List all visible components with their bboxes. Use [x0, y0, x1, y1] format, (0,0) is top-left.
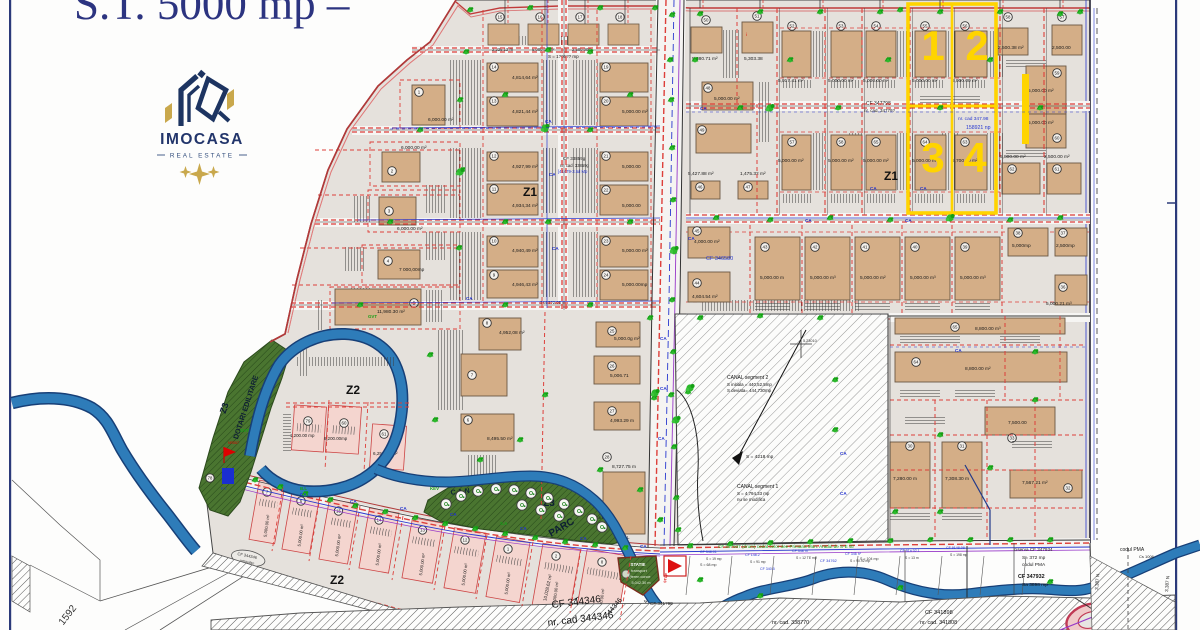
svg-text:25: 25 [610, 329, 615, 334]
svg-text:60: 60 [1055, 136, 1060, 141]
svg-text:5,303.38: 5,303.38 [744, 56, 763, 62]
svg-text:43: 43 [763, 245, 768, 250]
svg-text:CA: CA [660, 336, 667, 341]
svg-text:CANAL segment 1: CANAL segment 1 [737, 484, 778, 490]
svg-text:48: 48 [706, 86, 711, 91]
svg-text:CA: CA [700, 106, 707, 111]
svg-text:CA: CA [350, 499, 357, 504]
svg-text:NR557: NR557 [228, 441, 239, 445]
svg-text:5,000.00 m²: 5,000.00 m² [828, 78, 854, 84]
svg-text:CA: CA [450, 512, 457, 517]
svg-text:4,934,34 m²: 4,934,34 m² [512, 203, 538, 209]
svg-text:37: 37 [1061, 231, 1066, 236]
svg-text:codul PMA: codul PMA [1120, 547, 1145, 553]
svg-text:4,946,43 m²: 4,946,43 m² [512, 282, 538, 288]
svg-text:Cs 1006: Cs 1006 [1139, 554, 1155, 559]
svg-text:CF 148.2: CF 148.2 [745, 553, 760, 557]
svg-text:CF 341?98: CF 341?98 [650, 601, 673, 606]
svg-text:2: 2 [965, 22, 988, 69]
svg-text:ciserva CF 347934: ciserva CF 347934 [1014, 547, 1053, 552]
svg-text:5,000.00 m²: 5,000.00 m² [863, 158, 889, 164]
svg-text:4,940,49 m²: 4,940,49 m² [512, 248, 538, 254]
svg-text:1,475.32 m²: 1,475.32 m² [740, 171, 766, 177]
svg-text:79: 79 [306, 419, 311, 424]
svg-text:Z2: Z2 [330, 573, 344, 587]
svg-text:5,000.00: 5,000.00 [622, 203, 641, 209]
svg-text:61: 61 [382, 432, 387, 437]
svg-text:7,500.00: 7,500.00 [1008, 420, 1027, 426]
svg-text:5,000.00 m²: 5,000.00 m² [863, 78, 889, 84]
svg-text:19: 19 [604, 65, 609, 70]
svg-text:5,800.00 m²: 5,800.00 m² [1000, 154, 1026, 160]
svg-text:CF 347937 (drum) cedat celor d: CF 347937 (drum) cedat celor dee Primari… [718, 544, 855, 549]
svg-text:5,000.00 m³: 5,000.00 m³ [810, 275, 836, 281]
svg-text:33: 33 [1010, 436, 1015, 441]
svg-text:5,000.00 m²: 5,000.00 m² [952, 78, 978, 84]
svg-text:41: 41 [863, 245, 868, 250]
svg-text:12: 12 [492, 154, 497, 159]
svg-text:Z1: Z1 [884, 169, 898, 183]
svg-text:CANAL segment 2: CANAL segment 2 [727, 375, 768, 381]
svg-text:45: 45 [695, 229, 700, 234]
svg-text:65: 65 [874, 140, 879, 145]
svg-text:Sa 3898 mp: Sa 3898 mp [1022, 582, 1048, 588]
svg-text:5,23010: 5,23010 [803, 339, 817, 343]
svg-text:6,000.00 m²: 6,000.00 m² [397, 226, 423, 232]
svg-text:5,427.88 m²: 5,427.88 m² [688, 171, 714, 177]
svg-text:5,017.41 m²: 5,017.41 m² [778, 78, 804, 84]
svg-text:5,000.00: 5,000.00 [622, 164, 641, 170]
svg-text:4,927,99 m²: 4,927,99 m² [512, 164, 538, 170]
svg-text:28: 28 [605, 455, 610, 460]
svg-text:10: 10 [492, 239, 497, 244]
svg-text:5,000.00 m²: 5,000.00 m² [1028, 120, 1054, 126]
svg-text:P.T.: P.T. [221, 487, 227, 491]
svg-text:CF 34762: CF 34762 [820, 559, 837, 563]
svg-text:nr. cad. 338770: nr. cad. 338770 [772, 620, 809, 626]
svg-text:4,000.00 m²: 4,000.00 m² [694, 239, 720, 245]
svg-text:nr. cad. 341808: nr. cad. 341808 [920, 620, 957, 626]
svg-text:nu se modifica: nu se modifica [737, 497, 766, 502]
svg-text:CF 348 m: CF 348 m [792, 549, 808, 553]
svg-text:6,000.00 m²: 6,000.00 m² [428, 117, 454, 123]
svg-text:5,000.00 m²: 5,000.00 m² [828, 158, 854, 164]
svg-text:KEV: KEV [430, 486, 439, 491]
svg-text:46: 46 [698, 185, 703, 190]
svg-text:CA: CA [658, 436, 665, 441]
svg-text:5,000.00 m²: 5,000.00 m² [778, 158, 804, 164]
svg-text:58: 58 [1006, 15, 1011, 20]
svg-text:2,500.00: 2,500.00 [1052, 45, 1071, 51]
svg-text:S = 104 mp: S = 104 mp [860, 557, 878, 561]
svg-text:CA: CA [545, 119, 552, 124]
svg-text:31: 31 [960, 444, 965, 449]
svg-text:60: 60 [342, 421, 347, 426]
svg-text:Z1: Z1 [523, 185, 537, 199]
svg-text:S = 91 mp: S = 91 mp [750, 560, 766, 564]
svg-text:4,814,64 m²: 4,814,64 m² [512, 75, 538, 81]
svg-text:2,500mp: 2,500mp [1056, 243, 1075, 249]
svg-text:S = 198 mp: S = 198 mp [950, 553, 968, 557]
svg-text:5,000.00 m²: 5,000.00 m² [622, 109, 648, 115]
svg-text:CF 346580: CF 346580 [706, 256, 733, 262]
svg-text:7 000,00mp: 7 000,00mp [399, 267, 425, 273]
svg-text:36: 36 [1061, 285, 1066, 290]
svg-text:1: 1 [921, 22, 944, 69]
svg-text:4,993.29 m: 4,993.29 m [610, 418, 634, 424]
svg-text:CA: CA [466, 296, 473, 301]
svg-text:5,000mp: 5,000mp [1012, 243, 1031, 249]
svg-text:5,000.00 m²: 5,000.00 m² [1028, 88, 1054, 94]
svg-text:CA: CA [870, 186, 877, 191]
svg-text:S deviata= 444,730mp: S deviata= 444,730mp [727, 388, 772, 393]
svg-text:5,000.00 m³: 5,000.00 m³ [960, 275, 986, 281]
svg-text:65: 65 [953, 325, 958, 330]
svg-text:11: 11 [492, 187, 497, 192]
svg-text:8,727.75 m: 8,727.75 m [612, 464, 636, 470]
svg-text:CA: CA [549, 172, 556, 177]
svg-text:S = 1?05?? mp: S = 1?05?? mp [548, 54, 579, 59]
svg-text:Z2: Z2 [346, 383, 360, 397]
svg-text:CF 91a 02.1: CF 91a 02.1 [900, 549, 920, 553]
svg-text:13: 13 [492, 99, 497, 104]
svg-text:1,200.00 mp: 1,200.00 mp [290, 433, 315, 438]
svg-text:5,000.00 m³: 5,000.00 m³ [910, 275, 936, 281]
svg-text:S = 4218 mp: S = 4218 mp [746, 454, 774, 460]
svg-text:58: 58 [839, 140, 844, 145]
svg-text:GVT: GVT [240, 428, 249, 433]
svg-text:158921 np: 158921 np [966, 125, 991, 131]
svg-text:40: 40 [913, 245, 918, 250]
svg-text:5,042.30 m: 5,042.30 m [632, 581, 651, 585]
svg-text:CA: CA [660, 386, 667, 391]
svg-text:12: 12 [463, 538, 468, 543]
svg-text:S initiala = 440,52.5mp: S initiala = 440,52.5mp [727, 382, 772, 387]
svg-text:30: 30 [908, 444, 913, 449]
svg-text:15: 15 [498, 15, 503, 20]
svg-text:5,000.00mp: 5,000.00mp [622, 282, 648, 288]
svg-text:IMOCASA: IMOCASA [160, 131, 244, 148]
svg-text:24: 24 [604, 273, 609, 278]
svg-text:CF 347932: CF 347932 [1018, 574, 1045, 580]
svg-text:GVT: GVT [368, 314, 377, 319]
svg-text:S.A: S.A [500, 521, 508, 526]
svg-text:5,000.00 m²: 5,000.00 m² [622, 248, 648, 254]
svg-text:5,000.00 m: 5,000.00 m [760, 275, 784, 281]
svg-text:8,200.00mp: 8,200.00mp [324, 436, 348, 441]
svg-text:3: 3 [921, 134, 944, 181]
svg-text:CF 9148.08: CF 9148.08 [946, 546, 965, 550]
svg-text:5,006.71: 5,006.71 [610, 373, 629, 379]
svg-text:CA: CA [840, 451, 847, 456]
svg-text:nr. cad. 33859g: nr. cad. 33859g [560, 163, 590, 168]
svg-text:CA: CA [640, 544, 647, 549]
svg-text:23: 23 [604, 239, 609, 244]
svg-text:CF 346 h²: CF 346 h² [845, 552, 862, 556]
svg-text:i: i [746, 32, 747, 37]
svg-text:S = 13 m: S = 13 m [905, 556, 919, 560]
svg-text:CA: CA [300, 492, 307, 497]
svg-text:codul PMA: codul PMA [1022, 562, 1046, 568]
svg-text:50: 50 [704, 18, 709, 23]
svg-text:51: 51 [755, 14, 760, 19]
svg-text:CA: CA [920, 186, 927, 191]
svg-text:CA: CA [552, 246, 559, 251]
svg-text:20: 20 [604, 99, 609, 104]
svg-text:CF 340.5: CF 340.5 [760, 567, 775, 571]
svg-text:CA: CA [805, 218, 812, 223]
svg-text:49: 49 [700, 128, 705, 133]
svg-text:4,952,08 m²: 4,952,08 m² [499, 330, 525, 336]
svg-text:17: 17 [578, 15, 583, 20]
svg-text:22: 22 [604, 188, 609, 193]
svg-text:CA: CA [520, 526, 527, 531]
svg-text:5,000.00 m²: 5,000.00 m² [714, 96, 740, 102]
svg-text:5,000.21 m³: 5,000.21 m³ [1046, 301, 1072, 307]
svg-text:CA: CA [688, 236, 695, 241]
svg-text:59: 59 [1055, 71, 1060, 76]
svg-text:S = 19 mp: S = 19 mp [706, 557, 722, 561]
svg-text:CA: CA [580, 536, 587, 541]
svg-text:18: 18 [618, 15, 623, 20]
svg-text:CA: CA [840, 491, 847, 496]
svg-text:CA: CA [905, 218, 912, 223]
svg-text:S.T. 5000 mp –: S.T. 5000 mp – [74, 0, 350, 29]
svg-text:nr. cad 347.98: nr. cad 347.98 [958, 116, 989, 122]
svg-text:39: 39 [963, 245, 968, 250]
svg-text:2,500.38 m²: 2,500.38 m² [998, 45, 1024, 51]
svg-text:(teren conce: (teren conce [629, 575, 650, 579]
svg-text:42: 42 [813, 245, 818, 250]
svg-text:7,308.30 m: 7,308.30 m [945, 476, 969, 482]
svg-text:CA: CA [955, 348, 962, 353]
svg-text:14: 14 [492, 65, 497, 70]
svg-text:2,500.00 m²: 2,500.00 m² [1044, 154, 1070, 160]
svg-text:5,000.00 m²: 5,000.00 m² [860, 275, 886, 281]
svg-text:CF 341898: CF 341898 [925, 610, 953, 616]
svg-text:21: 21 [604, 154, 609, 159]
svg-text:transport: transport [631, 568, 648, 573]
svg-text:8,800.00 m³: 8,800.00 m³ [975, 326, 1001, 332]
svg-text:S = 12 TE mp: S = 12 TE mp [796, 556, 817, 560]
svg-text:CA: CA [400, 506, 407, 511]
svg-text:REAL ESTATE: REAL ESTATE [170, 153, 234, 160]
svg-text:4: 4 [963, 134, 987, 181]
svg-text:7,280.00 m: 7,280.00 m [893, 476, 917, 482]
svg-text:S= 372 mp: S= 372 mp [1022, 555, 1046, 561]
svg-text:5,000.00 m²: 5,000.00 m² [912, 78, 938, 84]
svg-text:62: 62 [1010, 167, 1015, 172]
svg-text:B.L: B.L [300, 486, 307, 491]
svg-text:8,800.00 m²: 8,800.00 m² [965, 366, 991, 372]
svg-text:26: 26 [610, 364, 615, 369]
svg-text:64: 64 [914, 360, 919, 365]
svg-text:S = 68 mp: S = 68 mp [700, 563, 716, 567]
svg-text:38: 38 [1016, 231, 1021, 236]
svg-text:4,821,44 m²: 4,821,44 m² [512, 109, 538, 115]
svg-text:8,495.50 m²: 8,495.50 m² [487, 436, 513, 442]
svg-text:S = 4,794,33 mp: S = 4,794,33 mp [737, 491, 770, 496]
svg-text:61: 61 [1055, 167, 1060, 172]
svg-text:11,980.30 m²: 11,980.30 m² [377, 309, 405, 315]
svg-text:4,604.54 m²: 4,604.54 m² [692, 294, 718, 300]
svg-text:27: 27 [610, 409, 615, 414]
svg-text:CF 348.01: CF 348.01 [700, 550, 717, 554]
svg-text:78: 78 [208, 476, 213, 481]
svg-text:57: 57 [790, 140, 795, 145]
svg-text:44: 44 [695, 281, 700, 286]
svg-text:STATIE: STATIE [631, 562, 646, 567]
svg-text:47: 47 [746, 185, 751, 190]
svg-text:5,000.0g m²: 5,000.0g m² [614, 336, 640, 342]
svg-text:32: 32 [1066, 486, 1071, 491]
